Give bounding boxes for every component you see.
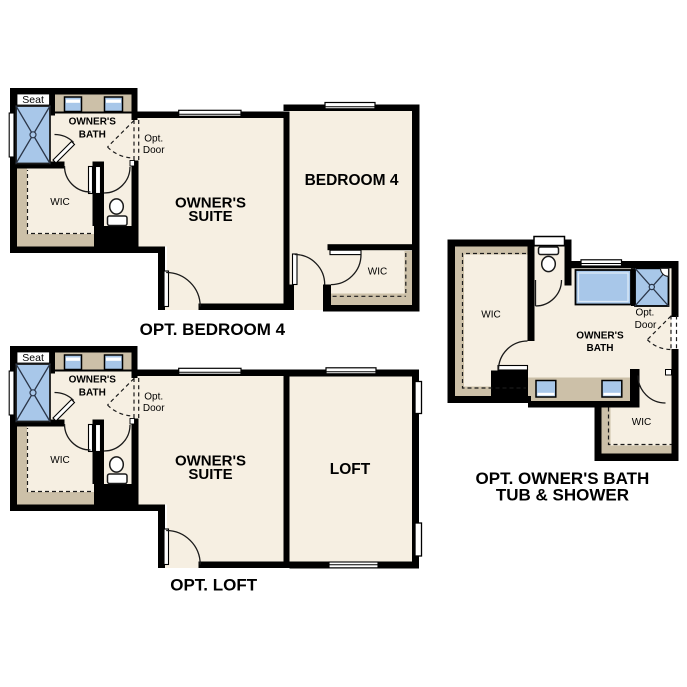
svg-text:BATH: BATH xyxy=(79,387,106,398)
svg-text:OWNER'S: OWNER'S xyxy=(69,375,117,386)
svg-text:WIC: WIC xyxy=(368,267,387,278)
svg-text:Door: Door xyxy=(635,320,657,331)
svg-text:Seat: Seat xyxy=(22,94,44,106)
svg-text:Opt.: Opt. xyxy=(635,308,654,319)
svg-text:WIC: WIC xyxy=(632,417,651,428)
svg-text:Seat: Seat xyxy=(22,352,44,364)
svg-text:BEDROOM 4: BEDROOM 4 xyxy=(305,172,399,189)
svg-text:SUITE: SUITE xyxy=(188,466,232,483)
svg-text:Opt.: Opt. xyxy=(144,392,163,403)
svg-text:Door: Door xyxy=(143,403,165,414)
svg-text:LOFT: LOFT xyxy=(330,461,371,478)
svg-text:WIC: WIC xyxy=(50,197,69,208)
svg-text:WIC: WIC xyxy=(50,455,69,466)
svg-text:OWNER'S: OWNER'S xyxy=(69,117,117,128)
svg-text:OPT. BEDROOM 4: OPT. BEDROOM 4 xyxy=(140,320,286,339)
svg-text:BATH: BATH xyxy=(586,343,613,354)
svg-text:WIC: WIC xyxy=(481,309,500,320)
svg-text:Door: Door xyxy=(143,145,165,156)
svg-text:OWNER'S: OWNER'S xyxy=(576,331,624,342)
svg-text:SUITE: SUITE xyxy=(188,208,232,225)
svg-text:OPT. LOFT: OPT. LOFT xyxy=(170,576,258,595)
svg-text:Opt.: Opt. xyxy=(144,134,163,145)
svg-text:BATH: BATH xyxy=(79,129,106,140)
svg-text:TUB & SHOWER: TUB & SHOWER xyxy=(496,486,629,505)
